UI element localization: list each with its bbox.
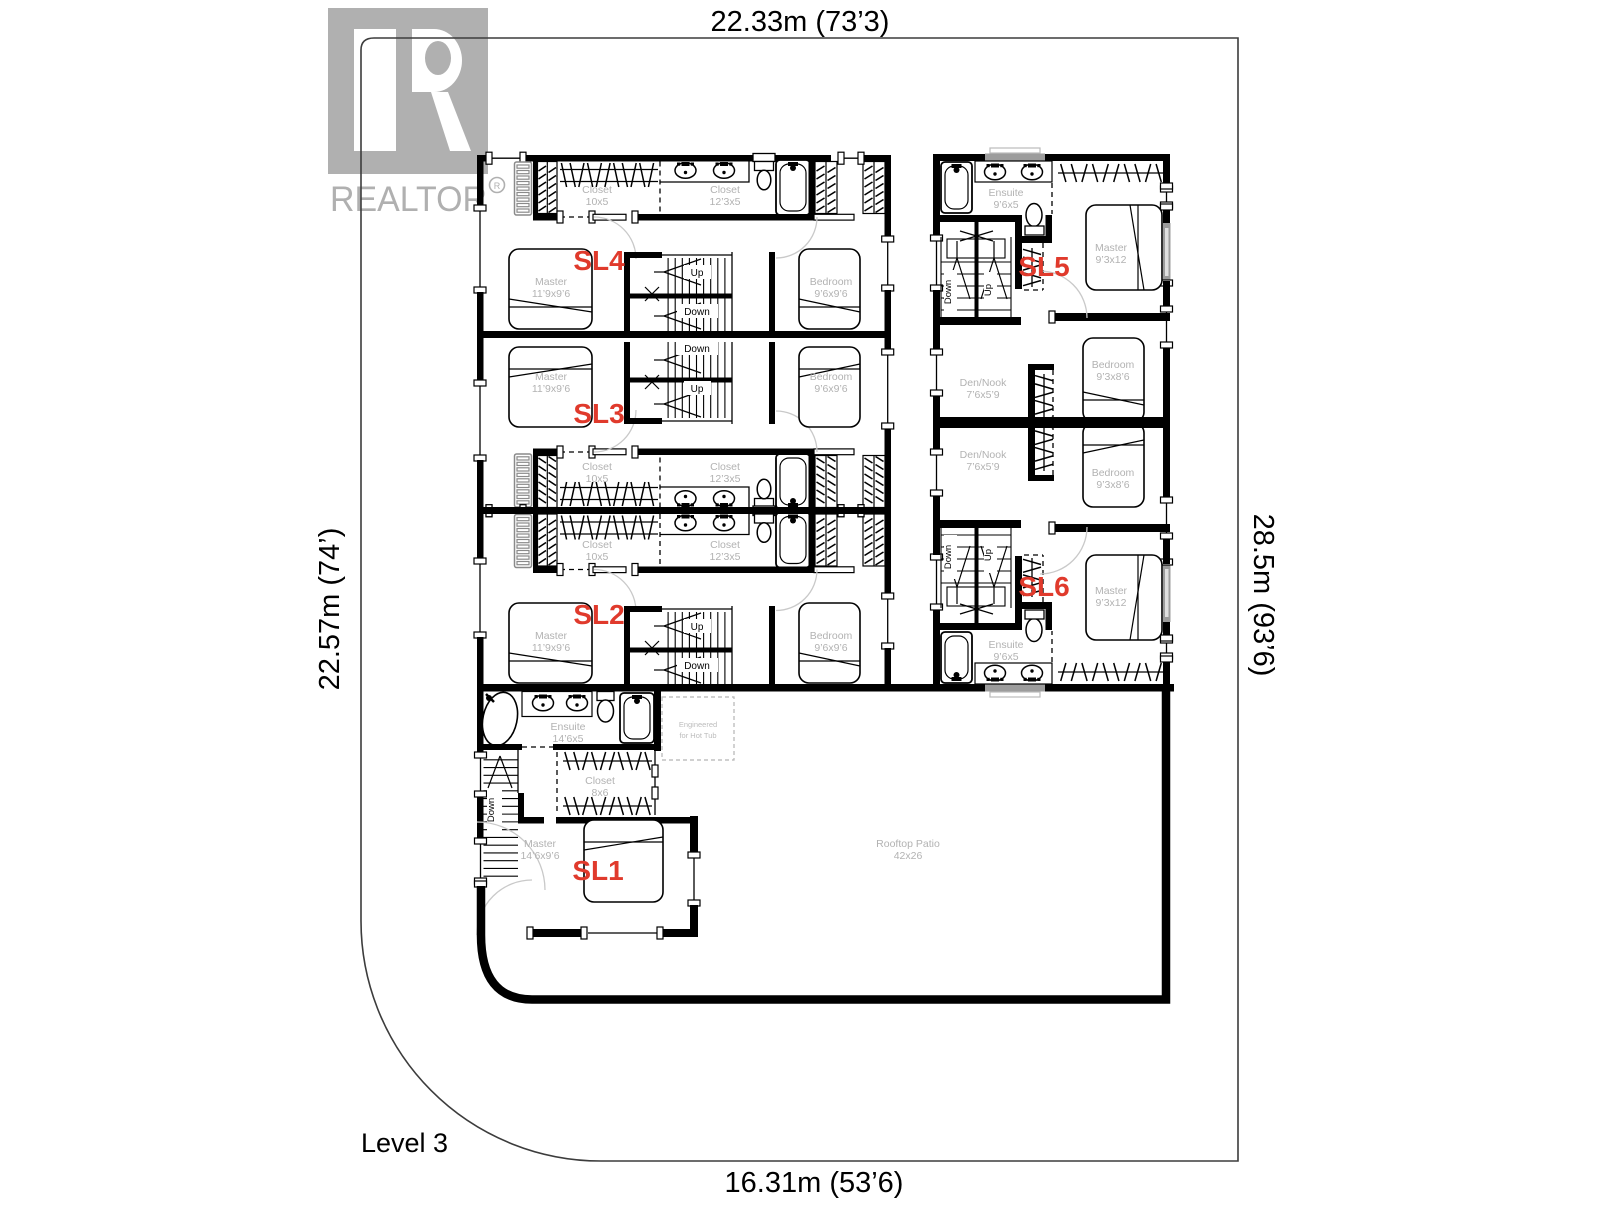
svg-text:12’3x5: 12’3x5 xyxy=(710,551,741,563)
svg-text:9’6x5: 9’6x5 xyxy=(993,651,1018,663)
svg-text:REALTOR: REALTOR xyxy=(330,180,487,219)
svg-text:Master: Master xyxy=(535,371,568,383)
svg-text:Ensuite: Ensuite xyxy=(988,639,1023,651)
svg-text:Up: Up xyxy=(983,284,994,296)
svg-text:14’6x9’6: 14’6x9’6 xyxy=(520,850,559,862)
svg-text:Closet: Closet xyxy=(582,184,612,196)
svg-text:Master: Master xyxy=(1095,585,1128,597)
svg-text:16.31m (53’6): 16.31m (53’6) xyxy=(725,1167,904,1199)
svg-text:Down: Down xyxy=(943,280,954,304)
svg-text:SL3: SL3 xyxy=(573,398,624,429)
svg-text:SL4: SL4 xyxy=(573,245,625,276)
svg-text:11’9x9’6: 11’9x9’6 xyxy=(532,642,570,654)
svg-text:SL6: SL6 xyxy=(1018,571,1069,602)
svg-text:Down: Down xyxy=(684,307,710,318)
svg-text:Up: Up xyxy=(691,268,704,279)
svg-text:10x5: 10x5 xyxy=(586,196,609,208)
svg-text:Closet: Closet xyxy=(582,539,612,551)
svg-text:Down: Down xyxy=(684,661,710,672)
svg-text:Up: Up xyxy=(983,549,994,561)
svg-text:SL1: SL1 xyxy=(572,855,623,886)
svg-text:Closet: Closet xyxy=(710,184,740,196)
svg-text:9’6x9’6: 9’6x9’6 xyxy=(814,383,847,395)
svg-text:42x26: 42x26 xyxy=(894,850,923,862)
svg-text:12’3x5: 12’3x5 xyxy=(710,473,741,485)
svg-text:Down: Down xyxy=(684,344,710,355)
svg-text:Level 3: Level 3 xyxy=(361,1128,448,1158)
svg-text:Closet: Closet xyxy=(585,775,615,787)
svg-text:Master: Master xyxy=(535,630,568,642)
svg-text:9’6x9’6: 9’6x9’6 xyxy=(814,642,847,654)
svg-text:9’3x8’6: 9’3x8’6 xyxy=(1096,371,1129,383)
svg-text:SL5: SL5 xyxy=(1018,251,1069,282)
svg-text:Bedroom: Bedroom xyxy=(810,630,853,642)
svg-text:11’9x9’6: 11’9x9’6 xyxy=(532,288,570,300)
svg-text:Master: Master xyxy=(1095,242,1128,254)
svg-text:22.57m (74’): 22.57m (74’) xyxy=(314,528,346,691)
svg-text:Master: Master xyxy=(535,276,568,288)
svg-text:Rooftop Patio: Rooftop Patio xyxy=(876,838,940,850)
svg-text:Closet: Closet xyxy=(710,461,740,473)
svg-text:14’6x5: 14’6x5 xyxy=(553,733,584,745)
svg-text:Engineered: Engineered xyxy=(679,720,717,729)
svg-text:9’3x12: 9’3x12 xyxy=(1096,254,1127,266)
svg-text:Down: Down xyxy=(486,798,497,822)
svg-text:Up: Up xyxy=(691,384,704,395)
svg-text:Bedroom: Bedroom xyxy=(810,371,853,383)
svg-text:Bedroom: Bedroom xyxy=(1092,359,1135,371)
svg-text:10x5: 10x5 xyxy=(586,473,609,485)
svg-text:Bedroom: Bedroom xyxy=(1092,467,1135,479)
svg-text:9’6x9’6: 9’6x9’6 xyxy=(814,288,847,300)
svg-text:7’6x5’9: 7’6x5’9 xyxy=(966,389,999,401)
svg-text:Den/Nook: Den/Nook xyxy=(960,449,1007,461)
svg-text:12’3x5: 12’3x5 xyxy=(710,196,741,208)
svg-text:Master: Master xyxy=(524,838,557,850)
svg-text:7’6x5’9: 7’6x5’9 xyxy=(966,461,999,473)
svg-text:9’3x8’6: 9’3x8’6 xyxy=(1096,479,1129,491)
svg-text:Up: Up xyxy=(691,622,704,633)
svg-text:Bedroom: Bedroom xyxy=(810,276,853,288)
svg-text:Ensuite: Ensuite xyxy=(550,721,585,733)
svg-text:Down: Down xyxy=(943,545,954,569)
svg-text:Ensuite: Ensuite xyxy=(988,187,1023,199)
svg-text:SL2: SL2 xyxy=(573,599,624,630)
svg-text:22.33m (73’3): 22.33m (73’3) xyxy=(711,6,890,38)
svg-text:Closet: Closet xyxy=(582,461,612,473)
svg-text:9’3x12: 9’3x12 xyxy=(1096,597,1127,609)
svg-text:11’9x9’6: 11’9x9’6 xyxy=(532,383,570,395)
svg-text:9’6x5: 9’6x5 xyxy=(993,199,1018,211)
svg-text:for Hot Tub: for Hot Tub xyxy=(679,731,716,740)
svg-text:Den/Nook: Den/Nook xyxy=(960,377,1007,389)
svg-text:Closet: Closet xyxy=(710,539,740,551)
svg-text:28.5m (93’6): 28.5m (93’6) xyxy=(1247,514,1279,677)
svg-text:R: R xyxy=(494,181,501,191)
svg-text:10x5: 10x5 xyxy=(586,551,609,563)
